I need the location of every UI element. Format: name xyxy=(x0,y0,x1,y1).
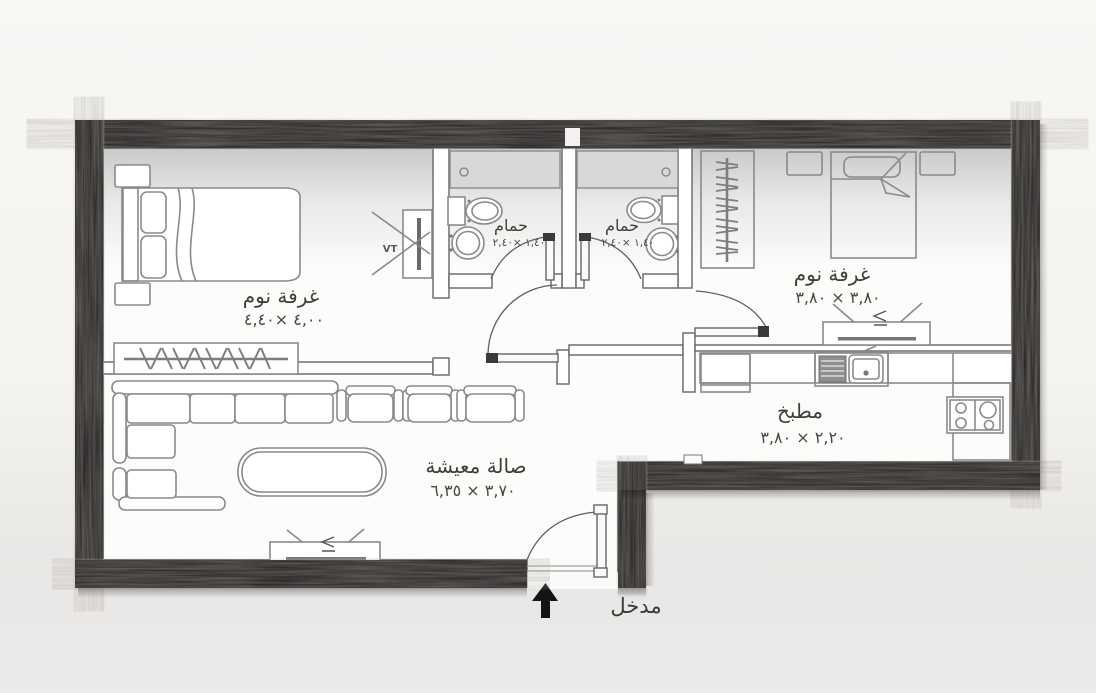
door-hinge xyxy=(594,568,607,577)
tv-mark-label: VT xyxy=(383,244,398,255)
living-north-wall-pier xyxy=(433,358,449,375)
kitchen-dims: ٢,٢٠ × ٣,٨٠ xyxy=(760,428,845,447)
bath-right-south-wall-b xyxy=(643,274,678,288)
bathroom-left-label: حمام xyxy=(494,216,528,235)
bathroom-left-dims: ١,٤٠ ×٢,٤٠ xyxy=(493,237,546,249)
nightstand-icon xyxy=(115,283,150,305)
shower-drain xyxy=(662,168,670,176)
floor-plan-svg: VT غرفة نوم ٤,٠٠ ×٤,٤٠ حمام xyxy=(0,0,1096,693)
outer-wall-top xyxy=(75,120,1040,148)
living-label: صالة معيشة xyxy=(425,454,526,478)
bedroom-right-label: غرفة نوم xyxy=(794,262,870,286)
bed-icon xyxy=(122,188,300,281)
bedroom-right-dims: ٣,٨٠ × ٣,٨٠ xyxy=(795,288,880,307)
floor-plan-page: VT غرفة نوم ٤,٠٠ ×٤,٤٠ حمام xyxy=(0,0,1096,693)
bedroom-right-west-wall xyxy=(683,333,695,392)
bath-left-west-wall xyxy=(433,148,449,298)
outer-wall-right xyxy=(1012,120,1040,490)
bathroom-right-label: حمام xyxy=(605,216,639,235)
armchair-icon xyxy=(457,386,524,422)
coffee-table-icon xyxy=(238,448,386,496)
armchair-icon xyxy=(403,386,460,422)
bath-left-south-wall-a xyxy=(449,274,492,288)
pillow xyxy=(141,236,166,278)
outer-wall-step xyxy=(618,462,646,588)
stove-icon xyxy=(947,397,1003,433)
living-dims: ٣,٧٠ × ٦,٣٥ xyxy=(430,481,515,500)
wall-vent-marker xyxy=(684,455,702,464)
kitchen-sink-icon xyxy=(815,346,888,386)
outer-wall-bottom-right xyxy=(618,462,1040,490)
outer-wall-bottom-left xyxy=(75,560,527,588)
door-hinge xyxy=(758,326,769,337)
bathroom-right-dims: ١,٤٠ ×٢,٤٠ xyxy=(602,237,655,249)
outer-wall-left xyxy=(75,120,103,588)
door-hinge xyxy=(486,353,498,363)
living-door-post xyxy=(557,350,569,384)
bedroom-left-label: غرفة نوم xyxy=(243,284,319,308)
bath-divider-wall xyxy=(562,148,576,288)
shower-drain xyxy=(460,168,468,176)
hall-south-wall xyxy=(569,345,683,355)
door-hinge xyxy=(594,505,607,514)
pillow xyxy=(141,192,166,233)
bath-right-east-wall xyxy=(678,148,692,288)
kitchen-label: مطبخ xyxy=(777,399,823,423)
door-hinge xyxy=(579,233,591,241)
wall-vent-marker xyxy=(565,128,580,146)
wardrobe-icon xyxy=(114,343,298,374)
bedroom-left-dims: ٤,٠٠ ×٤,٤٠ xyxy=(244,310,324,329)
kitchen-north-wall xyxy=(695,345,1012,351)
nightstand-icon xyxy=(115,165,150,187)
